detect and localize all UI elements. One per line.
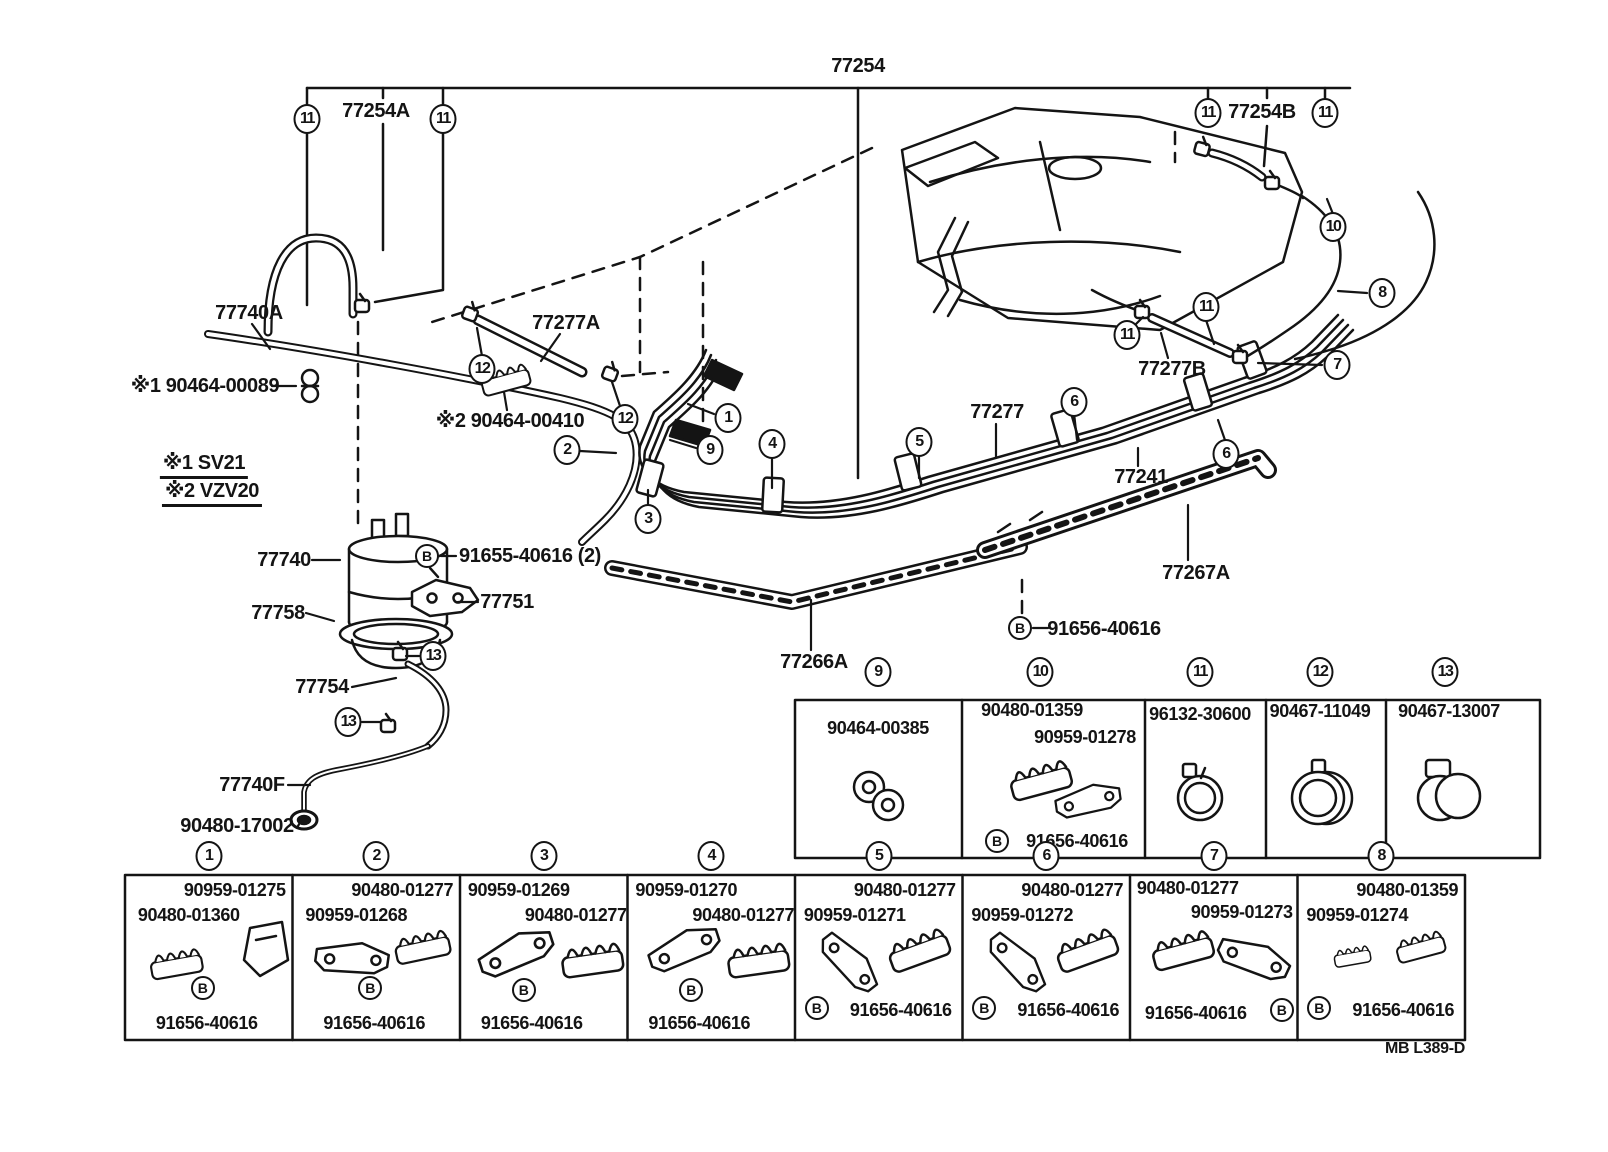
- figure-code: MB L389-D: [1385, 1040, 1465, 1058]
- callout-number: 10: [1027, 657, 1054, 687]
- part-label: 77277B: [1138, 359, 1206, 379]
- callout-number: 12: [1307, 657, 1334, 687]
- part-label: ※1 90464-00089: [131, 376, 279, 396]
- part-label: 90959-01272: [971, 906, 1073, 924]
- part-label: 77740F: [219, 775, 284, 795]
- callout-number: 6: [1213, 439, 1240, 469]
- part-label: 90480-01277: [1021, 881, 1123, 899]
- part-label: 90467-13007: [1398, 702, 1500, 720]
- part-label: 77267A: [1162, 563, 1230, 583]
- callout-number: 12: [469, 354, 496, 384]
- part-label: 90959-01268: [305, 906, 407, 924]
- callout-number: 8: [1368, 841, 1395, 871]
- callout-number: 4: [759, 429, 786, 459]
- b-marker: B: [415, 544, 439, 568]
- callout-number: 11: [1114, 320, 1141, 350]
- callout-number: 11: [1187, 657, 1214, 687]
- part-label: 91656-40616: [648, 1014, 750, 1032]
- part-label: 77254: [831, 56, 885, 76]
- part-label: 90480-01277: [854, 881, 956, 899]
- callout-number: 5: [865, 841, 892, 871]
- part-label: 91656-40616: [1047, 619, 1161, 639]
- part-label: 90959-01270: [635, 881, 737, 899]
- part-label: 96132-30600: [1149, 705, 1251, 723]
- callout-number: 11: [430, 104, 457, 134]
- part-label: 77277: [970, 402, 1024, 422]
- callout-number: 11: [1193, 292, 1220, 322]
- part-label: 90480-01277: [1137, 879, 1239, 897]
- part-label: ※2 VZV20: [162, 481, 262, 507]
- part-label: 90480-01277: [525, 906, 627, 924]
- part-label: 77740A: [215, 303, 283, 323]
- callout-number: 1: [195, 841, 222, 871]
- b-marker: B: [1008, 616, 1032, 640]
- part-label: 91656-40616: [1145, 1004, 1247, 1022]
- part-label: 91656-40616: [481, 1014, 583, 1032]
- b-marker: B: [191, 976, 215, 1000]
- part-label: 77241: [1114, 467, 1168, 487]
- part-label: 91656-40616: [850, 1001, 952, 1019]
- part-label: ※2 90464-00410: [436, 411, 584, 431]
- callout-number: 13: [1432, 657, 1459, 687]
- callout-number: 10: [1320, 212, 1347, 242]
- callout-number: 1: [715, 403, 742, 433]
- callout-number: 6: [1033, 841, 1060, 871]
- part-label: 77751: [480, 592, 534, 612]
- part-label: 90959-01274: [1306, 906, 1408, 924]
- part-label: 77758: [251, 603, 305, 623]
- callout-number: 2: [554, 435, 581, 465]
- callout-number: 6: [1061, 387, 1088, 417]
- part-label: 90959-01269: [468, 881, 570, 899]
- callout-number: 8: [1369, 278, 1396, 308]
- part-label: 90480-17002: [180, 816, 294, 836]
- part-label: 90959-01278: [1034, 728, 1136, 746]
- part-label: 77754: [295, 677, 349, 697]
- callout-number: 2: [363, 841, 390, 871]
- part-label: 91656-40616: [1017, 1001, 1119, 1019]
- callout-number: 9: [697, 435, 724, 465]
- part-label: 90480-01360: [138, 906, 240, 924]
- part-label: 90480-01277: [692, 906, 794, 924]
- callout-number: 3: [635, 504, 662, 534]
- part-label: 91656-40616: [156, 1014, 258, 1032]
- b-marker: B: [1270, 998, 1294, 1022]
- callout-number: 13: [335, 707, 362, 737]
- part-label: 77277A: [532, 313, 600, 333]
- part-label: 77254B: [1228, 102, 1296, 122]
- callout-number: 5: [906, 427, 933, 457]
- b-marker: B: [1307, 996, 1331, 1020]
- b-marker: B: [679, 978, 703, 1002]
- part-label: 91656-40616: [323, 1014, 425, 1032]
- callout-number: 11: [1195, 98, 1222, 128]
- callout-number: 12: [612, 404, 639, 434]
- b-marker: B: [512, 978, 536, 1002]
- part-label: 91656-40616: [1352, 1001, 1454, 1019]
- callout-number: 9: [865, 657, 892, 687]
- part-label: 90467-11049: [1270, 702, 1371, 720]
- part-label: 90480-01359: [981, 701, 1083, 719]
- b-marker: B: [805, 996, 829, 1020]
- b-marker: B: [972, 996, 996, 1020]
- part-label: 91655-40616 (2): [459, 546, 601, 566]
- callout-number: 3: [530, 841, 557, 871]
- callout-number: 13: [420, 641, 447, 671]
- text-overlay: 7725477254A77254B77740A※1 90464-00089772…: [0, 0, 1608, 1152]
- callout-number: 4: [698, 841, 725, 871]
- part-label: 90959-01275: [184, 881, 286, 899]
- part-label: ※1 SV21: [160, 453, 248, 479]
- b-marker: B: [358, 976, 382, 1000]
- part-label: 77254A: [342, 101, 410, 121]
- part-label: 77740: [257, 550, 311, 570]
- part-label: 77266A: [780, 652, 848, 672]
- callout-number: 11: [1312, 98, 1339, 128]
- part-label: 90959-01271: [804, 906, 906, 924]
- parts-diagram-page: 7725477254A77254B77740A※1 90464-00089772…: [0, 0, 1608, 1152]
- callout-number: 11: [294, 104, 321, 134]
- callout-number: 7: [1324, 350, 1351, 380]
- part-label: 90464-00385: [827, 719, 929, 737]
- part-label: 90480-01277: [351, 881, 453, 899]
- part-label: 90480-01359: [1356, 881, 1458, 899]
- part-label: 90959-01273: [1191, 903, 1293, 921]
- callout-number: 7: [1200, 841, 1227, 871]
- b-marker: B: [985, 829, 1009, 853]
